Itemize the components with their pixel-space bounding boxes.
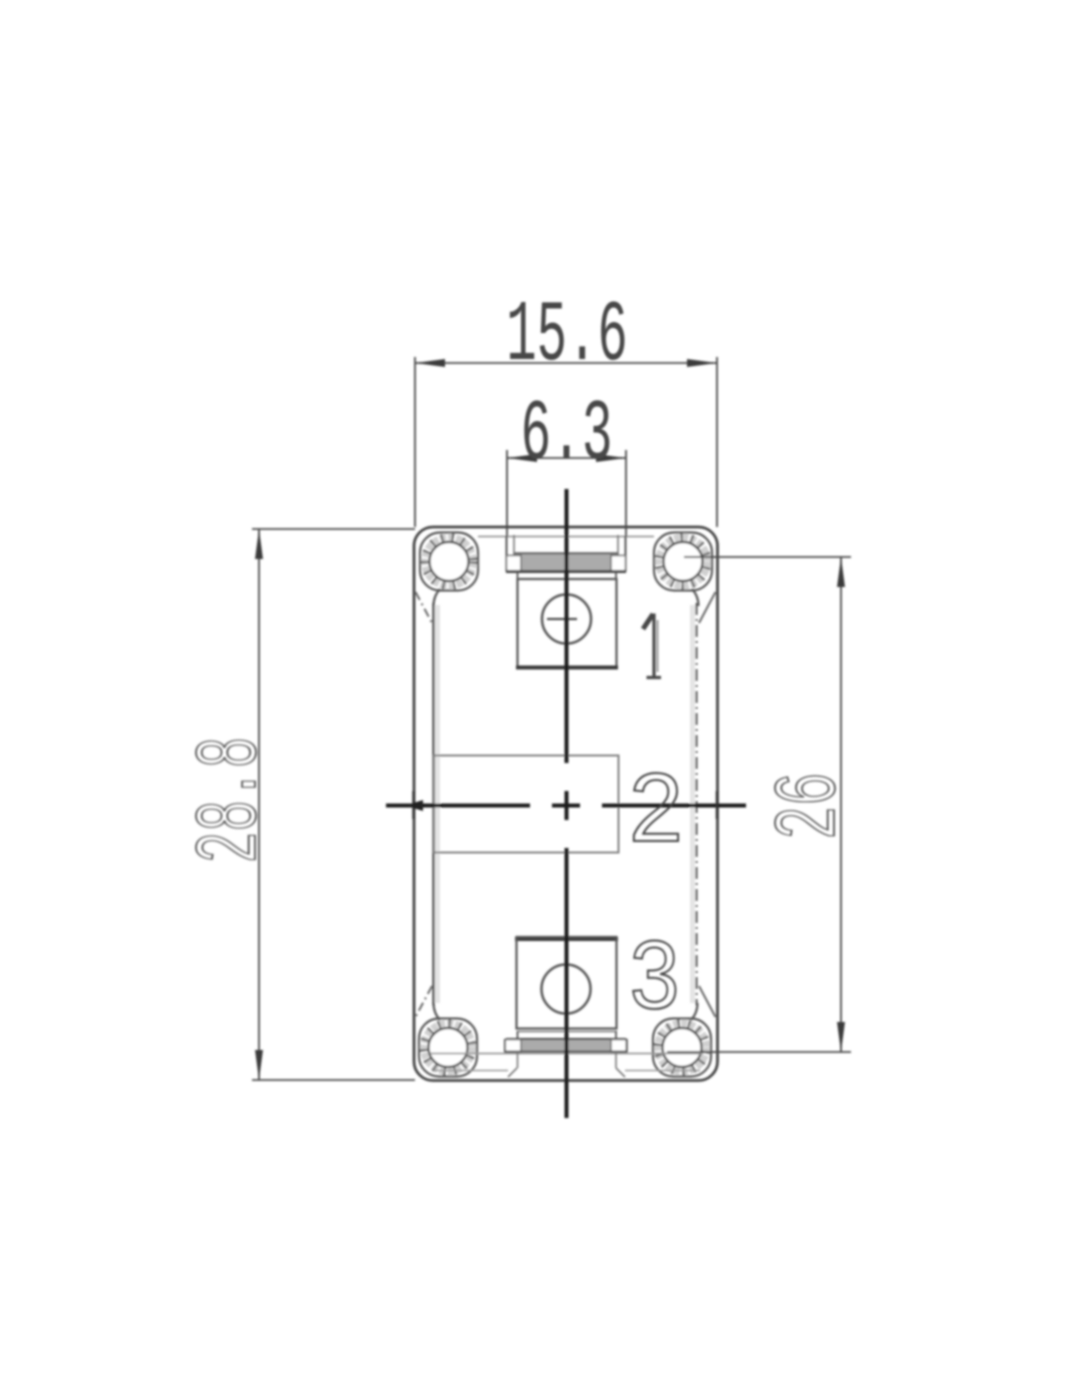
svg-text:28.8: 28.8 (182, 737, 281, 864)
svg-text:3: 3 (630, 921, 680, 1029)
svg-text:2: 2 (629, 753, 683, 862)
svg-text:6.3: 6.3 (520, 388, 612, 485)
svg-text:26: 26 (763, 772, 862, 840)
svg-text:15.6: 15.6 (506, 288, 628, 385)
